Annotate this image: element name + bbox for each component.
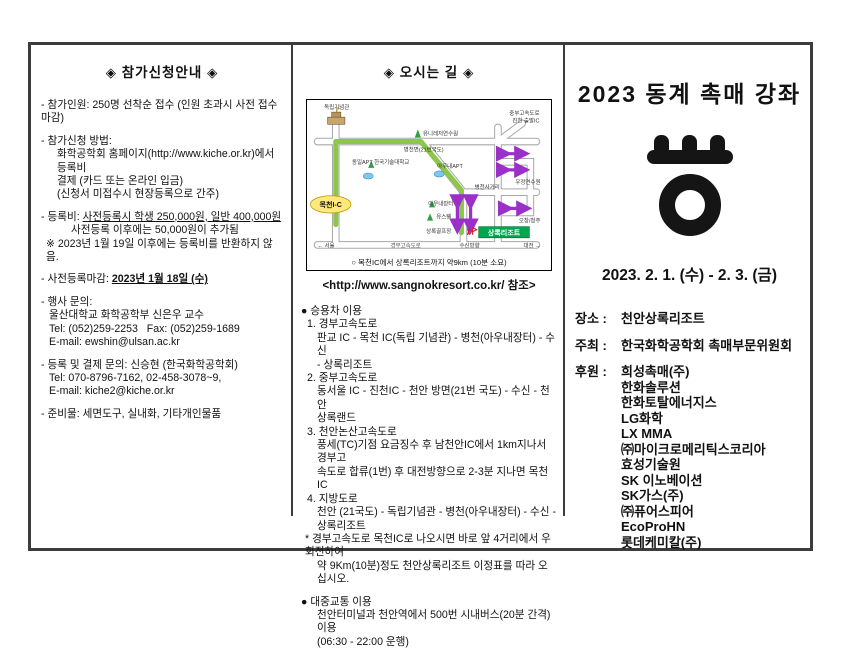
text-line: 상록리조트 [301, 520, 557, 533]
text-line: 풍세(TC)기점 요금징수 후 남천안IC에서 1km지나서 경부고 [301, 439, 557, 466]
svg-text:아우내APT: 아우내APT [437, 162, 463, 170]
text-line [41, 202, 283, 211]
text-line: 효성기술원 [621, 457, 766, 473]
host-label: 주최 : [575, 338, 621, 354]
text-line: Tel: (052)259-2253 Fax: (052)259-1689 [41, 323, 283, 336]
svg-text:상록리조트: 상록리조트 [488, 228, 521, 237]
text-line: Tel: 070-8796-7162, 02-458-3078~9, [41, 372, 283, 385]
text-line: - 상록리조트 [301, 359, 557, 372]
directions-title: ◈ 오시는 길 ◈ [301, 61, 557, 81]
text-line: 3. 천안논산고속도로 [301, 426, 557, 439]
registration-title: ◈ 참가신청안내 ◈ [41, 61, 283, 81]
text-line: 4. 지방도로 [301, 493, 557, 506]
location-map: 목천I-C 상록리조트 독립기념관 유니레저연수원 병천면(21번국도) 동일A… [306, 99, 552, 271]
text-line: ㈜퓨어스피어 [621, 504, 766, 520]
text-line: 약 9Km(10분)정도 천안상록리조트 이정표를 따라 오십시오. [301, 560, 557, 587]
directions-lines: ● 승용차 이용1. 경부고속도로판교 IC - 목천 IC(독립 기념관) -… [301, 305, 557, 649]
text-line: - 참가인원: 250명 선착순 접수 (인원 초과시 사전 접수 마감) [41, 99, 283, 126]
venue-label: 장소 : [575, 311, 621, 327]
text-line [41, 399, 283, 408]
text-line: - 행사 문의: [41, 296, 283, 309]
event-title-column: 2023 동계 촉매 강좌 2023. 2. 1. (수) - 2. 3. (금… [565, 45, 810, 550]
text-line: - 등록비: 사전등록시 학생 250,000원, 일반 400,000원 [41, 211, 283, 224]
text-line: - 등록 및 결제 문의: 신승현 (한국화학공학회) [41, 359, 283, 372]
text-line: 1. 경부고속도로 [301, 318, 557, 331]
text-line: 판교 IC - 목천 IC(독립 기념관) - 병천(아우내장터) - 수신 [301, 332, 557, 359]
registration-lines: - 참가인원: 250명 선착순 접수 (인원 초과시 사전 접수 마감)- 참… [41, 99, 283, 421]
text-line: ● 대중교통 이용 [301, 596, 557, 609]
svg-text:독립기념관: 독립기념관 [324, 103, 349, 111]
text-line: ● 승용차 이용 [301, 305, 557, 318]
text-line: (06:30 - 22:00 운행) [301, 636, 557, 649]
sponsor-label: 후원 : [575, 364, 621, 550]
text-line: LX MMA [621, 426, 766, 442]
svg-text:오창/청주: 오창/청주 [519, 217, 541, 225]
sponsor-row: 후원 : 희성촉매(주)한화솔루션한화토탈에너지스LG화학LX MMA㈜마이크로… [575, 364, 804, 550]
text-line: 천안 (21국도) - 독립기념관 - 병천(아우내장터) - 수신 - [301, 506, 557, 519]
pond-icons [363, 171, 444, 179]
venue-value: 천안상록리조트 [621, 311, 705, 327]
text-line: 2. 중부고속도로 [301, 372, 557, 385]
text-line: EcoProHN [621, 519, 766, 535]
text-line: 희성촉매(주) [621, 364, 766, 380]
svg-text:목천I-C: 목천I-C [319, 200, 341, 209]
text-line [41, 126, 283, 135]
svg-text:유니레저연수원: 유니레저연수원 [423, 129, 458, 137]
text-line: 한화토탈에너지스 [621, 395, 766, 411]
svg-text:경부고속도로: 경부고속도로 [391, 241, 421, 249]
catalysis-society-logo-icon [647, 135, 733, 237]
directions-column: ◈ 오시는 길 ◈ [293, 45, 563, 649]
text-line: 상록랜드 [301, 412, 557, 425]
text-line: - 참가신청 방법: [41, 135, 283, 148]
event-info: 장소 : 천안상록리조트 주최 : 한국화학공학회 촉매부문위원회 후원 : 희… [575, 311, 804, 550]
venue-row: 장소 : 천안상록리조트 [575, 311, 804, 327]
svg-text:동일APT 한국기술대학교: 동일APT 한국기술대학교 [352, 158, 409, 166]
svg-text:유스텔: 유스텔 [436, 213, 451, 221]
text-line: 천안터미널과 천안역에서 500번 시내버스(20분 간격) 이용 [301, 609, 557, 636]
text-line [41, 287, 283, 296]
map-caption: ○ 목천IC에서 상록리조트까지 약9km (10분 소요) [308, 257, 550, 268]
svg-text:병천면(21번국도): 병천면(21번국도) [404, 146, 444, 154]
text-line: 한화솔루션 [621, 380, 766, 396]
text-line: LG화학 [621, 411, 766, 427]
text-line: SK 이노베이션 [621, 473, 766, 489]
text-line: 화학공학회 홈페이지(http://www.kiche.or.kr)에서 등록비 [41, 148, 283, 175]
svg-text:중부고속도로: 중부고속도로 [509, 109, 539, 117]
text-line: 결제 (카드 또는 온라인 입금) [41, 175, 283, 188]
pamphlet-sheet: ◈ 참가신청안내 ◈ - 참가인원: 250명 선착순 접수 (인원 초과시 사… [28, 42, 813, 551]
text-line: 울산대학교 화학공학부 신은우 교수 [41, 309, 283, 322]
mokcheon-ic-badge: 목천I-C [310, 196, 351, 213]
svg-text:← 서울: ← 서울 [318, 241, 335, 249]
text-line: 동서울 IC - 진천IC - 천안 방면(21번 국도) - 수신 - 천안 [301, 385, 557, 412]
svg-text:우정연수원: 우정연수원 [515, 178, 540, 186]
logo-ring [659, 174, 721, 236]
text-line: 롯데케미칼(주) [621, 535, 766, 551]
text-line: E-mail: ewshin@ulsan.ac.kr [41, 336, 283, 349]
text-line: (신청서 미접수시 현장등록으로 간주) [41, 188, 283, 201]
svg-text:아우내장터: 아우내장터 [428, 199, 453, 207]
text-line: ※ 2023년 1월 19일 이후에는 등록비를 반환하지 않음. [41, 238, 283, 265]
host-row: 주최 : 한국화학공학회 촉매부문위원회 [575, 338, 804, 354]
text-line: 속도로 합류(1번) 후 대전방향으로 2-3분 지나면 목천IC [301, 466, 557, 493]
svg-text:병천사거리: 병천사거리 [475, 183, 500, 191]
svg-text:상록골프장: 상록골프장 [426, 227, 451, 235]
text-line: ㈜마이크로메리틱스코리아 [621, 442, 766, 458]
text-line: E-mail: kiche2@kiche.or.kr [41, 385, 283, 398]
map-drawing: 목천I-C 상록리조트 독립기념관 유니레저연수원 병천면(21번국도) 동일A… [308, 103, 548, 251]
text-line: * 경부고속도로 목천IC로 나오시면 바로 앞 4거리에서 우회전하여 [301, 533, 557, 560]
registration-info-column: ◈ 참가신청안내 ◈ - 참가인원: 250명 선착순 접수 (인원 초과시 사… [31, 45, 291, 421]
event-dates: 2023. 2. 1. (수) - 2. 3. (금) [575, 263, 804, 285]
text-line: - 사전등록마감: 2023년 1월 18일 (수) [41, 273, 283, 286]
text-line [41, 350, 283, 359]
text-line [301, 587, 557, 596]
resort-website-reference: <http://www.sangnokresort.co.kr/ 참조> [301, 277, 557, 293]
host-value: 한국화학공학회 촉매부문위원회 [621, 338, 792, 354]
svg-text:진천 출발IC: 진천 출발IC [512, 116, 539, 124]
text-line: SK가스(주) [621, 488, 766, 504]
svg-text:대전 →: 대전 → [523, 241, 540, 249]
event-title: 2023 동계 촉매 강좌 [575, 75, 804, 109]
svg-text:수신방향: 수신방향 [459, 241, 479, 249]
text-line: - 준비물: 세면도구, 실내화, 기타개인물품 [41, 408, 283, 421]
resort-badge: 상록리조트 [468, 227, 530, 238]
sponsor-list: 희성촉매(주)한화솔루션한화토탈에너지스LG화학LX MMA㈜마이크로메리틱스코… [621, 364, 766, 550]
logo-bar [647, 150, 733, 164]
text-line: 사전등록 이후에는 50,000원이 추가됨 [41, 224, 283, 237]
